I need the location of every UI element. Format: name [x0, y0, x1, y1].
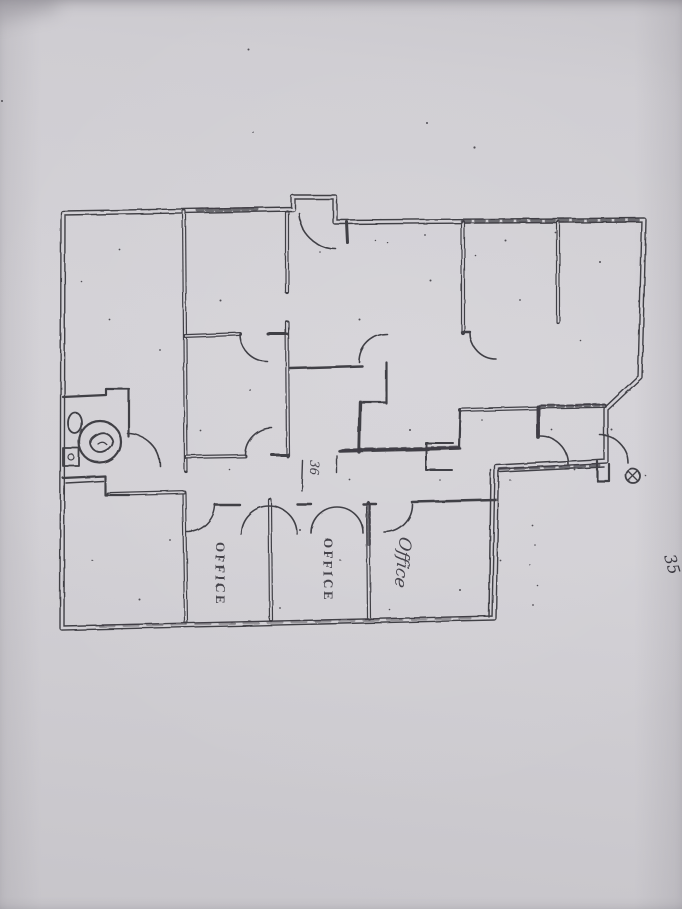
room-center	[291, 224, 460, 364]
bathroom-door-arc	[128, 434, 160, 466]
wall-hatching	[100, 209, 642, 626]
room-top-left	[66, 215, 182, 393]
column-marker-icon	[626, 469, 640, 483]
toilet-icon	[79, 421, 121, 463]
vestibule-door-arc-left	[540, 436, 568, 464]
office-3	[372, 506, 492, 616]
top-entry-door-arc	[299, 213, 336, 249]
office-3-door-arc	[384, 504, 412, 532]
floor-plan-drawing: OFFICE OFFICE Office 36	[0, 0, 682, 909]
dimension-tick-left	[302, 461, 303, 491]
floor-plan-photo: OFFICE OFFICE Office 36	[0, 0, 682, 909]
door-arcs	[128, 213, 628, 534]
office-2-door-fan	[311, 507, 363, 533]
room-large-right	[562, 224, 640, 374]
office-label-left: OFFICE	[213, 542, 228, 606]
room-b	[189, 338, 284, 454]
margin-note-handwritten: 35	[660, 552, 682, 577]
room-right-middle	[467, 224, 555, 320]
interior-walls	[108, 211, 605, 622]
office-label-right-handwritten: Office	[390, 535, 415, 590]
bottom-left-door-arc	[187, 504, 215, 532]
office-label-middle: OFFICE	[321, 538, 336, 602]
center-room-door-arc	[359, 334, 387, 362]
office-2	[274, 508, 365, 616]
room-b-door-arc	[245, 428, 272, 455]
room-a	[189, 215, 284, 333]
rooms	[66, 215, 640, 622]
photocopy-speckles	[1, 48, 646, 611]
room-bottom-left	[66, 497, 181, 622]
entry-vestibule	[541, 411, 603, 461]
plan-labels: OFFICE OFFICE Office 36	[213, 460, 415, 606]
door-width-dimension: 36	[307, 460, 321, 476]
right-middle-door-arc	[470, 333, 496, 359]
fixtures	[63, 413, 640, 484]
room-a-door-arc	[240, 334, 268, 362]
